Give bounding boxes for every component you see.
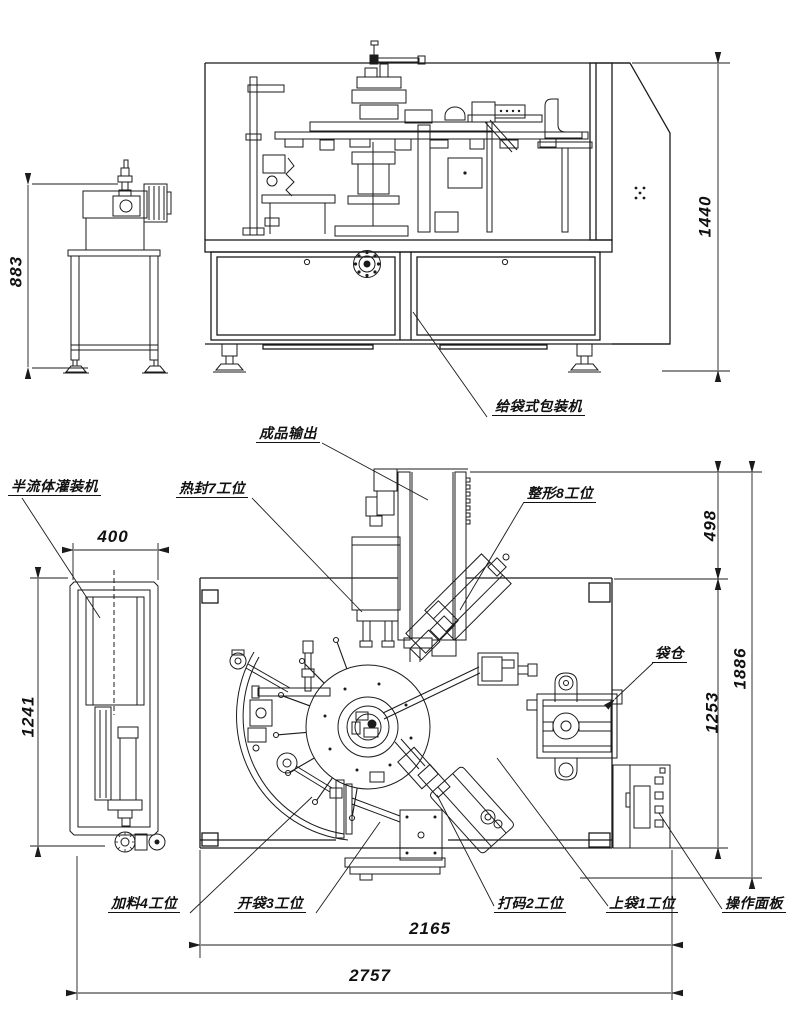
label-packaging-machine: 给袋式包装机	[492, 399, 585, 416]
dim-output-offset: 498	[702, 484, 719, 568]
dim-filler-length: 1241	[20, 675, 37, 759]
dim-overall-depth: 1886	[732, 627, 749, 711]
label-control-panel: 操作面板	[722, 896, 786, 913]
plan-station7-heatseal	[352, 537, 400, 647]
label-station-7-heat-seal: 热封7工位	[176, 481, 248, 498]
label-station-1-bag-load: 上袋1工位	[606, 896, 678, 913]
dim-main-height: 1440	[697, 175, 714, 259]
plan-station3-bagopen	[336, 772, 445, 880]
technical-drawing-sheet: 给袋式包装机 成品输出 半流体灌装机 热封7工位 整形8工位 袋仓 加料4工位 …	[0, 0, 800, 1014]
plan-rotary-table	[274, 638, 481, 821]
label-finished-output: 成品输出	[256, 426, 320, 443]
label-station-2-coding: 打码2工位	[494, 896, 566, 913]
label-station-8-shaping: 整形8工位	[524, 486, 596, 503]
front-machinery	[243, 41, 592, 236]
plan-control-panel	[613, 765, 670, 848]
leader-lines	[22, 443, 722, 913]
dim-body-length: 1253	[704, 671, 721, 755]
dim-filler-width: 400	[71, 528, 155, 545]
dim-overall-span: 2757	[328, 967, 412, 984]
label-station-4-feeding: 加料4工位	[108, 896, 180, 913]
dim-filler-height: 883	[8, 230, 25, 314]
label-station-3-bag-open: 开袋3工位	[234, 896, 306, 913]
plan-station8-shaping	[406, 554, 511, 660]
plan-station2-coding	[398, 747, 515, 854]
plan-bag-magazine	[527, 673, 622, 780]
plan-station1-block	[478, 653, 537, 685]
plan-main-frame	[200, 578, 612, 848]
drawing-linework	[0, 0, 800, 1014]
dim-inner-span: 2165	[388, 920, 472, 937]
label-bag-magazine: 袋仓	[652, 646, 687, 663]
plan-filler-machine	[70, 570, 165, 852]
label-filler-machine: 半流体灌装机	[8, 479, 101, 496]
plan-output-conveyor	[366, 469, 470, 662]
front-filler-machine	[63, 160, 171, 373]
front-main-machine	[205, 63, 670, 349]
